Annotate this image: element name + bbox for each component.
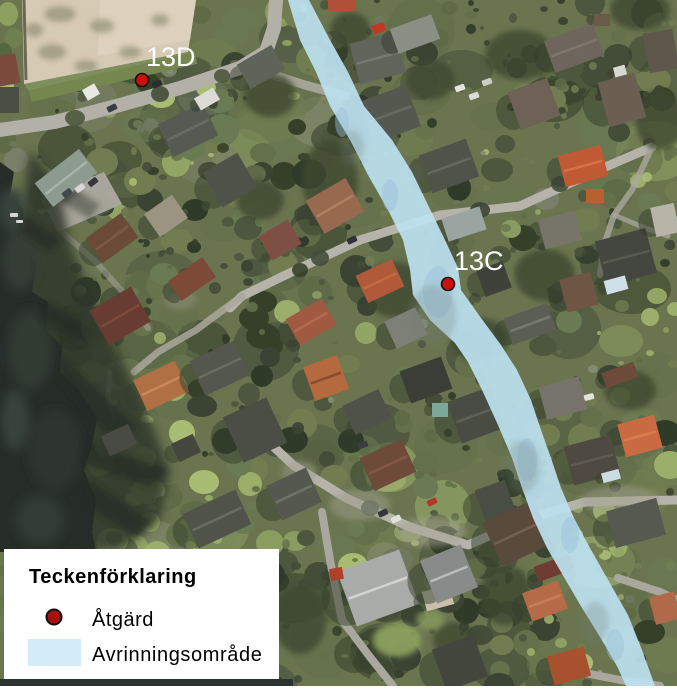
svg-text:Teckenförklaring: Teckenförklaring bbox=[29, 566, 197, 588]
svg-text:Åtgärd: Åtgärd bbox=[92, 608, 154, 631]
svg-text:Avrinningsområde: Avrinningsområde bbox=[92, 644, 262, 666]
svg-text:13C: 13C bbox=[454, 246, 504, 276]
svg-text:13D: 13D bbox=[146, 42, 196, 72]
